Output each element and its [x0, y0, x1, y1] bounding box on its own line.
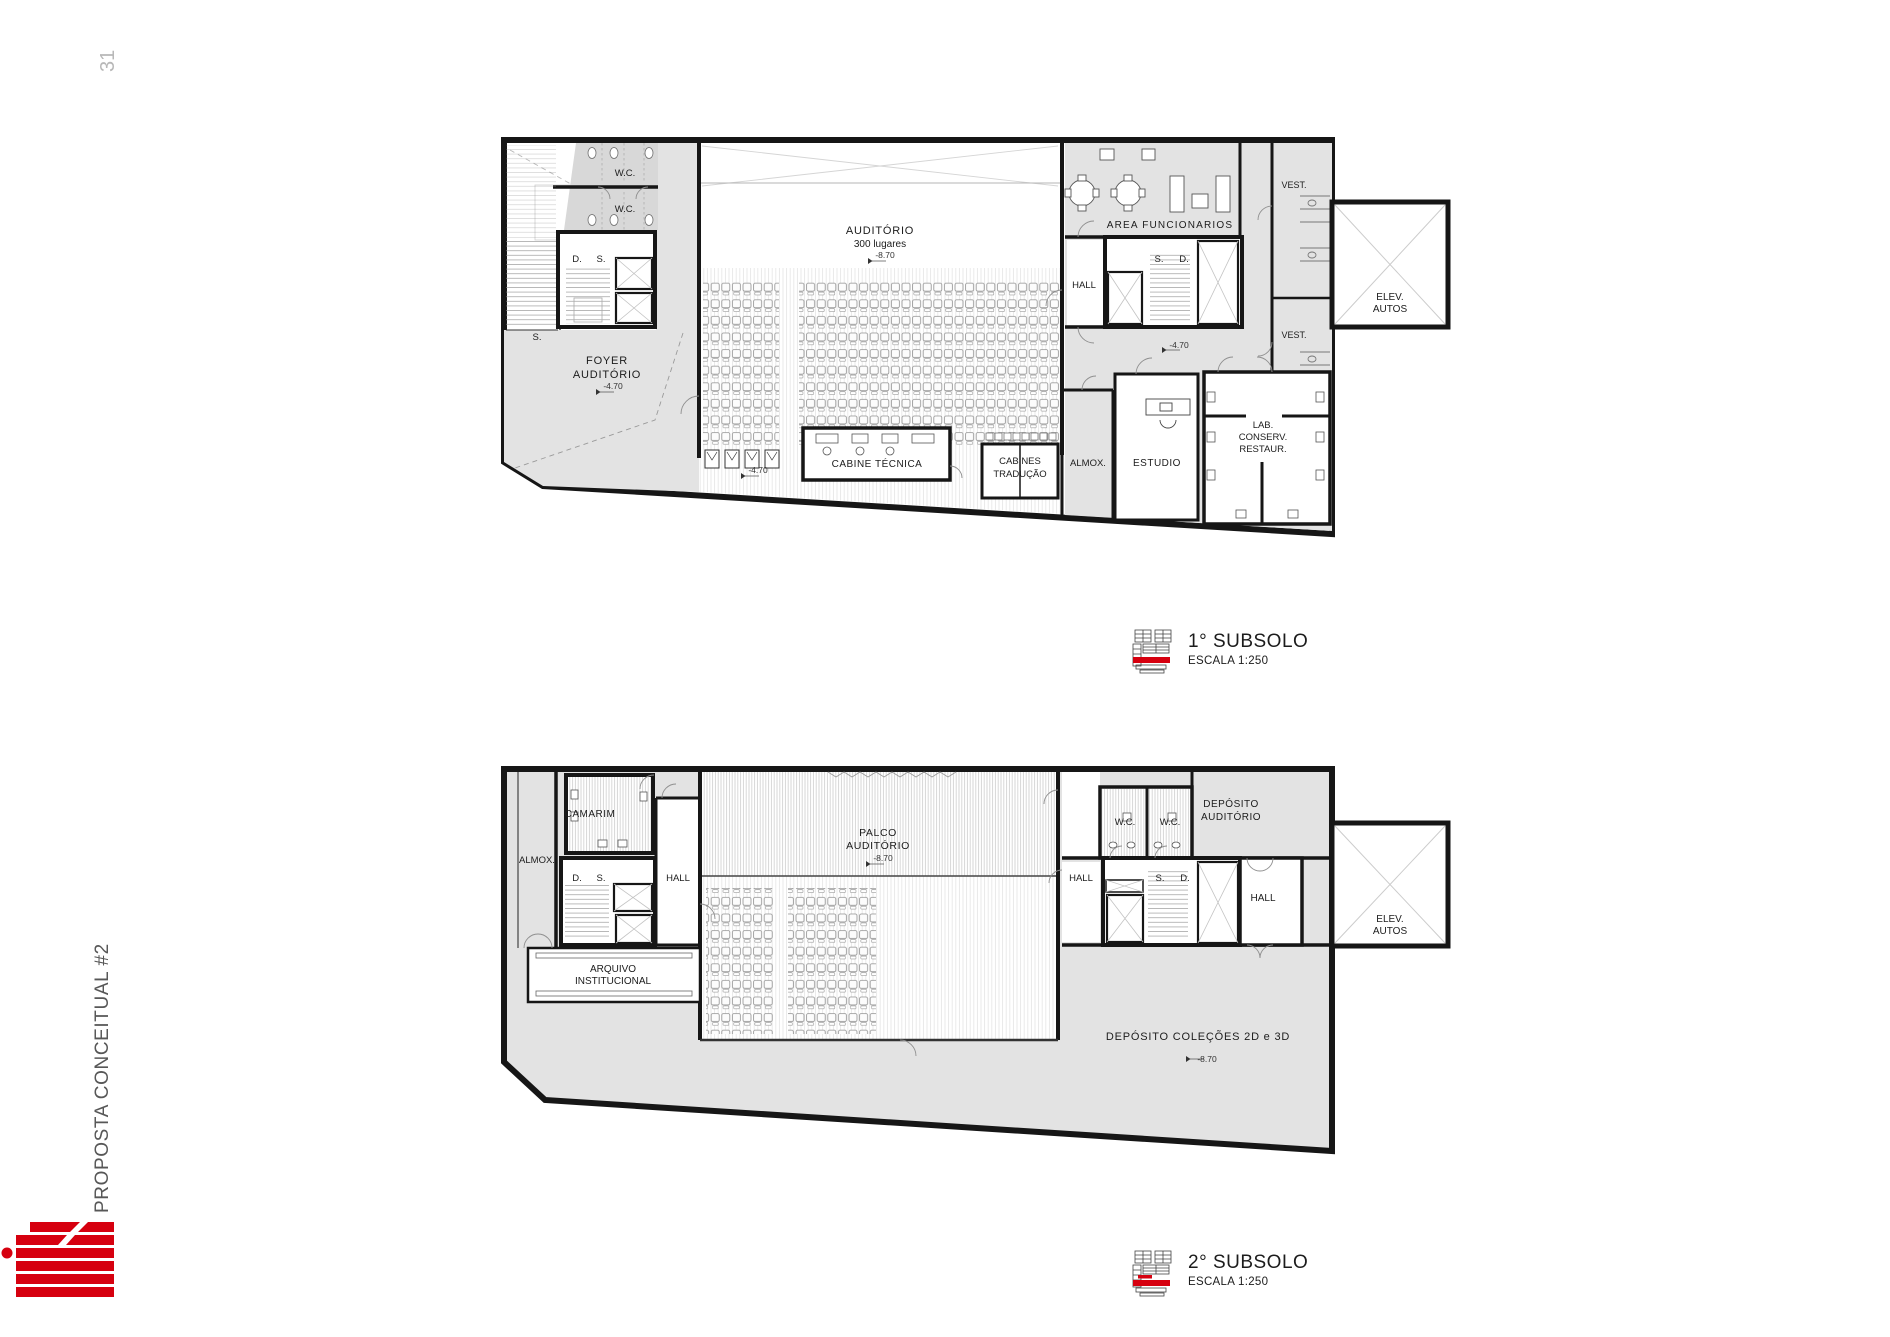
core-level: -4.70	[1169, 340, 1189, 350]
deposito-aud-label-1: DEPÓSITO	[1203, 797, 1259, 810]
arquivo-room	[528, 948, 700, 1002]
camarim-label: CAMARIM	[565, 809, 616, 820]
almox-label: ALMOX.	[519, 855, 555, 866]
auditorio-label-2: 300 lugares	[854, 239, 906, 250]
wc-left-label: W.C.	[1115, 817, 1136, 828]
stair-upper	[506, 145, 556, 233]
backstage-strip	[1062, 772, 1100, 856]
core-d-label: D.	[1179, 254, 1189, 265]
arquivo-label-1: ARQUIVO	[590, 964, 636, 975]
legend-2-subsolo: 2° SUBSOLO ESCALA 1:250	[1133, 1251, 1308, 1296]
vest-top-label: VEST.	[1281, 180, 1306, 190]
cabine-tecnica-room	[803, 428, 950, 480]
stair-main	[506, 237, 560, 327]
cabine-tecnica-label: CABINE TÉCNICA	[832, 457, 923, 470]
core-s-label: S.	[1156, 873, 1165, 884]
seat-bank-right	[799, 280, 1059, 446]
wc-top-label: W.C.	[615, 168, 636, 179]
palco-level: -8.70	[873, 853, 893, 863]
seat-bank-left	[706, 888, 774, 1034]
s-foyer-label: S.	[533, 332, 542, 343]
lab-label-3: RESTAUR.	[1239, 444, 1286, 455]
floor-key-icon	[1133, 1251, 1171, 1296]
auditorio-label-1: AUDITÓRIO	[846, 224, 914, 237]
hall-label: HALL	[1072, 280, 1096, 291]
palco-label-1: PALCO	[859, 827, 897, 839]
cabines-label-2: TRADUÇÃO	[993, 469, 1046, 480]
d-label: D.	[572, 254, 582, 265]
deposito-aud-label-2: AUDITÓRIO	[1201, 810, 1261, 823]
elev-autos-label-2: AUTOS	[1373, 926, 1408, 937]
s-label: S.	[597, 873, 606, 884]
vest-bottom-label: VEST.	[1281, 330, 1306, 340]
estudio-room	[1115, 374, 1198, 520]
foyer-label-1: FOYER	[586, 355, 628, 367]
s-label: S.	[597, 254, 606, 265]
studio-logo	[2, 1222, 115, 1297]
plan-2-subsolo: ALMOX. CAMARIM D. S. HALL ARQUIVO INSTIT…	[504, 769, 1448, 1151]
auditorio-level: -8.70	[875, 250, 895, 260]
seat-bank-right	[788, 888, 876, 1034]
drawing-canvas: W.C. W.C. D. S. S. FOYER AUDITÓRIO -4.70…	[0, 0, 1890, 1337]
hall-left	[656, 798, 698, 945]
seat-bank-left	[703, 280, 779, 446]
hall-right-label: HALL	[1250, 893, 1275, 904]
legend-1-scale: ESCALA 1:250	[1188, 655, 1268, 667]
floor-key-icon	[1133, 630, 1171, 673]
floor-level: -4.70	[748, 465, 768, 475]
elev-autos-label-2: AUTOS	[1373, 304, 1408, 315]
d-label: D.	[572, 873, 582, 884]
almox-label: ALMOX.	[1070, 458, 1106, 469]
legend-1-subsolo: 1° SUBSOLO ESCALA 1:250	[1133, 630, 1308, 673]
elev-autos-label-1: ELEV.	[1376, 914, 1403, 925]
plan-1-subsolo: W.C. W.C. D. S. S. FOYER AUDITÓRIO -4.70…	[504, 140, 1448, 534]
cabines-label-1: CABINES	[999, 456, 1041, 467]
area-funcionarios-label: AREA FUNCIONARIOS	[1107, 220, 1234, 231]
foyer-level: -4.70	[603, 381, 623, 391]
palco-label-2: AUDITÓRIO	[846, 839, 910, 852]
elev-autos-label-1: ELEV.	[1376, 292, 1403, 303]
hall-left-label: HALL	[666, 873, 690, 884]
wc-bottom-label: W.C.	[615, 204, 636, 215]
lab-label-1: LAB.	[1253, 420, 1274, 431]
core-d-label: D.	[1180, 873, 1190, 884]
foyer-label-2: AUDITÓRIO	[573, 368, 641, 381]
deposito-colecoes-label: DEPÓSITO COLEÇÕES 2D e 3D	[1106, 1030, 1290, 1043]
sheet: W.C. W.C. D. S. S. FOYER AUDITÓRIO -4.70…	[0, 0, 1890, 1337]
deposito-level: -8.70	[1197, 1054, 1217, 1064]
arquivo-label-2: INSTITUCIONAL	[575, 976, 652, 987]
hall-mid-label: HALL	[1069, 873, 1093, 884]
lab-label-2: CONSERV.	[1239, 432, 1288, 443]
legend-2-scale: ESCALA 1:250	[1188, 1276, 1268, 1288]
page-number: 31	[97, 50, 119, 72]
sidebar-title: PROPOSTA CONCEITUAL #2	[92, 943, 113, 1213]
wc-right-label: W.C.	[1160, 817, 1181, 828]
estudio-label: ESTUDIO	[1133, 458, 1181, 469]
legend-2-title: 2° SUBSOLO	[1188, 1252, 1308, 1273]
legend-1-title: 1° SUBSOLO	[1188, 631, 1308, 652]
core-s-label: S.	[1155, 254, 1164, 265]
